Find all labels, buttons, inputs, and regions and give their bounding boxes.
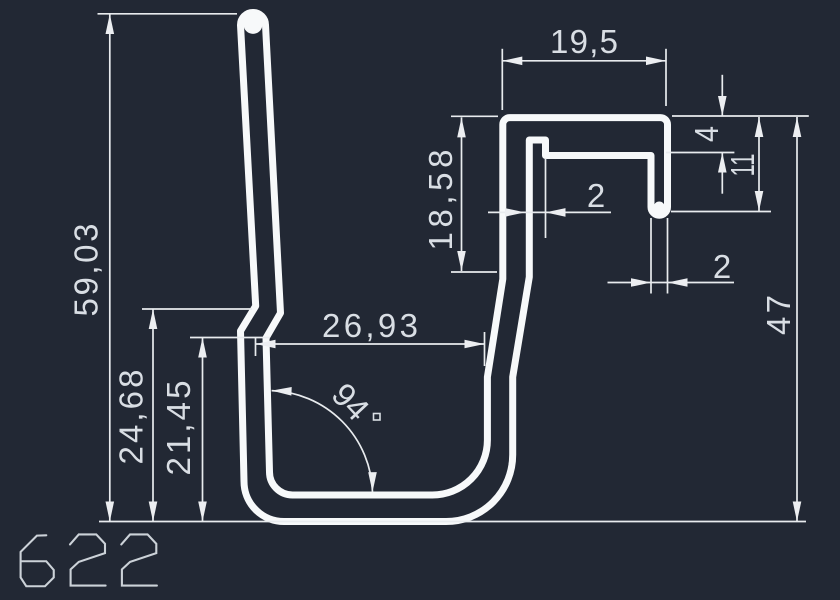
svg-text:18,58: 18,58	[422, 150, 459, 251]
svg-text:21,45: 21,45	[160, 381, 197, 476]
svg-text:2: 2	[713, 248, 731, 285]
svg-text:19,5: 19,5	[550, 23, 618, 60]
svg-text:24,68: 24,68	[113, 370, 150, 465]
svg-text:26,93: 26,93	[322, 307, 418, 344]
svg-text:59,03: 59,03	[68, 224, 105, 317]
svg-text:4: 4	[688, 126, 725, 142]
svg-text:2: 2	[587, 177, 605, 214]
svg-text:11: 11	[724, 154, 761, 177]
